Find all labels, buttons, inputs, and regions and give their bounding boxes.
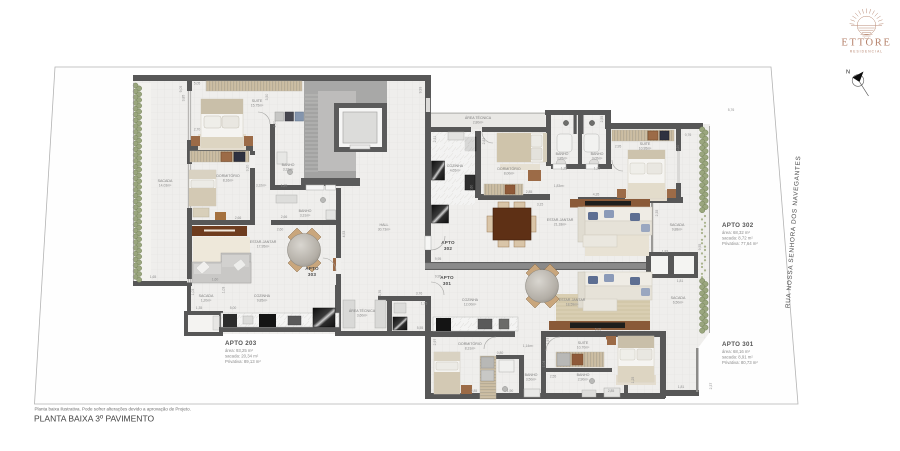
svg-text:1,81: 1,81 (677, 279, 684, 283)
svg-text:área: 93,25 m²: área: 93,25 m² (225, 348, 254, 353)
svg-text:BANHO: BANHO (577, 373, 590, 377)
svg-text:SUITE: SUITE (252, 99, 263, 103)
svg-text:30,73m²: 30,73m² (378, 228, 391, 232)
svg-text:SACADA: SACADA (671, 296, 686, 300)
svg-text:2,85: 2,85 (608, 389, 615, 393)
svg-text:SUITE: SUITE (640, 142, 651, 146)
svg-text:1,14m²: 1,14m² (523, 344, 534, 348)
svg-text:ETTORE: ETTORE (841, 38, 891, 49)
svg-text:0,80: 0,80 (497, 351, 504, 355)
svg-text:BANHO: BANHO (282, 163, 295, 167)
svg-text:9,88m²: 9,88m² (672, 228, 683, 232)
svg-text:3,31m²: 3,31m² (300, 214, 311, 218)
svg-text:4,35: 4,35 (593, 193, 600, 197)
svg-text:2,66: 2,66 (235, 216, 242, 220)
svg-text:APTO 203: APTO 203 (225, 340, 257, 347)
svg-text:1,03: 1,03 (191, 289, 195, 296)
svg-text:8,00m²: 8,00m² (504, 172, 515, 176)
svg-text:SACADA: SACADA (158, 179, 173, 183)
svg-text:ESTAR-JANTAR: ESTAR-JANTAR (547, 218, 574, 222)
svg-text:1,20m²: 1,20m² (201, 299, 212, 303)
svg-text:1,83: 1,83 (662, 250, 669, 254)
svg-text:4,53: 4,53 (342, 231, 346, 238)
svg-text:3,85m²: 3,85m² (557, 157, 568, 161)
svg-text:1,65: 1,65 (150, 275, 157, 279)
svg-text:ÁREA TÉCNICA: ÁREA TÉCNICA (465, 115, 492, 120)
svg-text:COZINHA: COZINHA (462, 298, 479, 302)
svg-text:2,70: 2,70 (273, 121, 277, 128)
svg-text:9,93: 9,93 (419, 87, 423, 94)
svg-text:APTO 301: APTO 301 (722, 341, 754, 348)
svg-text:área: 68,16 m²: área: 68,16 m² (722, 349, 751, 354)
svg-text:ÁREA TÉCNICA: ÁREA TÉCNICA (349, 308, 376, 313)
svg-text:8,16m²: 8,16m² (223, 179, 234, 183)
svg-text:DORMITÓRIO: DORMITÓRIO (216, 173, 240, 178)
svg-text:2,85: 2,85 (526, 190, 533, 194)
svg-text:3,85: 3,85 (182, 95, 186, 102)
svg-text:3,32m²: 3,32m² (283, 168, 294, 172)
svg-text:2,55: 2,55 (600, 116, 604, 123)
svg-text:3,50m²: 3,50m² (526, 378, 537, 382)
svg-text:5,00: 5,00 (230, 306, 237, 310)
svg-text:2,35: 2,35 (655, 210, 659, 217)
svg-text:2,80m²: 2,80m² (473, 121, 484, 125)
svg-text:10,95m²: 10,95m² (639, 147, 652, 151)
svg-text:BANHO: BANHO (299, 209, 312, 213)
svg-text:301: 301 (443, 281, 452, 286)
svg-text:APTO 302: APTO 302 (722, 222, 754, 229)
svg-text:1,25: 1,25 (561, 167, 568, 171)
svg-text:2,60: 2,60 (277, 228, 284, 232)
svg-text:SACADA: SACADA (670, 223, 685, 227)
svg-text:12,00m²: 12,00m² (464, 303, 477, 307)
svg-text:2,70: 2,70 (194, 128, 201, 132)
svg-text:APTO: APTO (305, 266, 319, 271)
svg-text:Privativa: 77,64 m²: Privativa: 77,64 m² (722, 241, 758, 246)
svg-text:sacada: 20,34 m²: sacada: 20,34 m² (225, 354, 259, 359)
svg-text:17,95m²: 17,95m² (257, 245, 270, 249)
svg-text:1,35: 1,35 (196, 306, 203, 310)
svg-text:1,04: 1,04 (542, 361, 546, 368)
svg-text:3,15: 3,15 (537, 203, 544, 207)
svg-text:1,03: 1,03 (222, 287, 226, 294)
svg-text:10,70m²: 10,70m² (577, 346, 590, 350)
svg-text:5,76: 5,76 (728, 108, 735, 112)
svg-text:9,85m²: 9,85m² (257, 299, 268, 303)
svg-text:1,75: 1,75 (421, 302, 428, 306)
svg-text:9,05: 9,05 (179, 86, 183, 93)
svg-text:APTO: APTO (440, 275, 454, 280)
svg-text:Privativa: 89,13 m²: Privativa: 89,13 m² (225, 359, 261, 364)
svg-text:8,31m²: 8,31m² (465, 347, 476, 351)
svg-text:3,76: 3,76 (378, 290, 382, 297)
svg-text:15,75m²: 15,75m² (251, 104, 264, 108)
svg-text:N: N (846, 70, 850, 76)
svg-text:5,55: 5,55 (417, 326, 424, 330)
svg-text:PLANTA BAIXA 3º PAVIMENTO: PLANTA BAIXA 3º PAVIMENTO (34, 414, 154, 424)
svg-text:2,97: 2,97 (433, 339, 437, 346)
svg-text:DORMITÓRIO: DORMITÓRIO (497, 166, 521, 171)
svg-text:2,31: 2,31 (433, 136, 437, 143)
svg-text:1,25: 1,25 (594, 167, 601, 171)
svg-text:1,25: 1,25 (631, 377, 635, 384)
svg-text:303: 303 (308, 272, 317, 277)
svg-text:9,95: 9,95 (435, 257, 442, 261)
svg-text:2,55: 2,55 (550, 375, 557, 379)
svg-text:COZINHA: COZINHA (447, 164, 464, 168)
svg-text:5,05: 5,05 (194, 82, 201, 86)
svg-text:COZINHA: COZINHA (254, 294, 271, 298)
svg-text:sacada: 8,91 m²: sacada: 8,91 m² (722, 355, 753, 360)
svg-text:9,95: 9,95 (435, 275, 442, 279)
svg-text:2,95: 2,95 (615, 145, 622, 149)
svg-text:2,66: 2,66 (281, 215, 288, 219)
svg-text:1,90: 1,90 (507, 389, 514, 393)
svg-text:1,60: 1,60 (212, 278, 219, 282)
svg-text:2,37: 2,37 (709, 383, 713, 390)
svg-text:sacada: 8,72 m²: sacada: 8,72 m² (722, 236, 753, 241)
svg-text:área: 68,32 m²: área: 68,32 m² (722, 230, 751, 235)
svg-text:5,05: 5,05 (595, 328, 602, 332)
svg-text:SACADA: SACADA (199, 294, 214, 298)
svg-text:0,20: 0,20 (676, 145, 680, 152)
svg-text:RESIDENCIAL: RESIDENCIAL (850, 49, 883, 53)
svg-text:DORMITÓRIO: DORMITÓRIO (458, 341, 482, 346)
svg-text:1,81: 1,81 (678, 385, 685, 389)
svg-text:3,76: 3,76 (416, 292, 423, 296)
svg-text:BANHO: BANHO (556, 152, 569, 156)
svg-text:3,60m²: 3,60m² (357, 314, 368, 318)
svg-text:3,05m²: 3,05m² (592, 157, 603, 161)
svg-text:21,18m²: 21,18m² (554, 223, 567, 227)
svg-text:HALL: HALL (380, 223, 389, 227)
svg-text:18,59m²: 18,59m² (566, 303, 579, 307)
svg-text:3,20: 3,20 (246, 165, 250, 172)
svg-text:6,50m²: 6,50m² (673, 301, 684, 305)
svg-text:1,83m²: 1,83m² (554, 184, 565, 188)
svg-text:2,60: 2,60 (470, 185, 474, 192)
svg-text:3,32m²: 3,32m² (256, 184, 267, 188)
svg-text:Privativa: 80,73 m²: Privativa: 80,73 m² (722, 360, 758, 365)
svg-text:0,76: 0,76 (685, 133, 692, 137)
svg-text:ESTAR-JANTAR: ESTAR-JANTAR (250, 240, 277, 244)
svg-text:4,65m²: 4,65m² (450, 169, 461, 173)
svg-text:Planta baixa ilustrativa. Pode: Planta baixa ilustrativa. Pode sofrer al… (35, 407, 191, 412)
svg-text:2,90m²: 2,90m² (578, 378, 589, 382)
svg-text:9,55: 9,55 (698, 244, 702, 251)
svg-text:ESTAR-JANTAR: ESTAR-JANTAR (559, 298, 586, 302)
svg-text:2,85: 2,85 (471, 389, 478, 393)
svg-text:302: 302 (444, 246, 453, 251)
svg-text:3,50: 3,50 (265, 94, 269, 101)
svg-text:1,20: 1,20 (281, 184, 288, 188)
svg-text:14,03m²: 14,03m² (159, 184, 172, 188)
svg-text:BANHO: BANHO (525, 373, 538, 377)
svg-text:SUITE: SUITE (578, 341, 589, 345)
svg-text:BANHO: BANHO (591, 152, 604, 156)
